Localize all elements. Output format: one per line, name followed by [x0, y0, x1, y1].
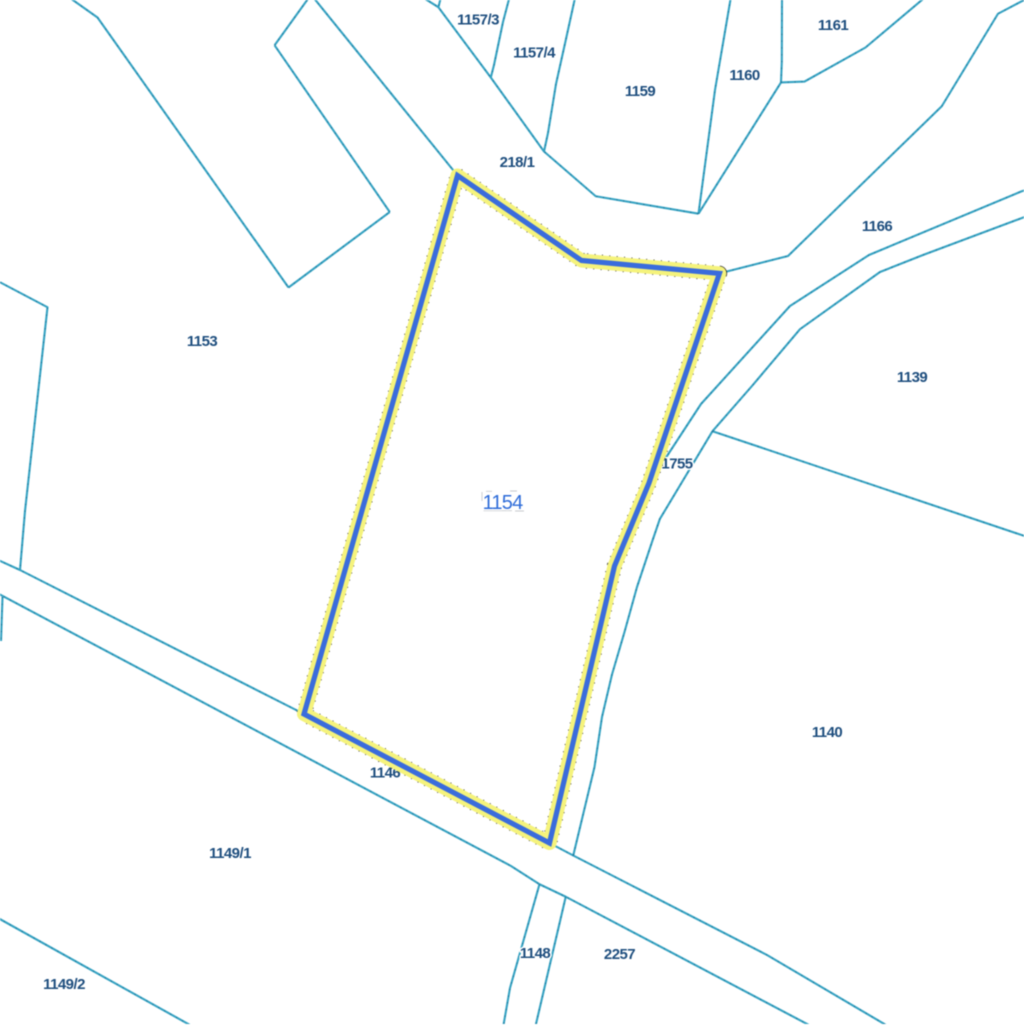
svg-text:1157/4: 1157/4	[513, 45, 556, 62]
svg-text:2257: 2257	[604, 946, 635, 963]
svg-text:1149/2: 1149/2	[43, 976, 85, 993]
svg-text:1755: 1755	[661, 456, 692, 473]
svg-text:218/1: 218/1	[500, 154, 535, 171]
svg-text:1157/3: 1157/3	[457, 12, 499, 29]
svg-text:1140: 1140	[812, 724, 843, 741]
svg-text:1148: 1148	[520, 945, 551, 962]
svg-text:1160: 1160	[729, 67, 760, 84]
svg-text:1161: 1161	[818, 17, 849, 34]
svg-text:1153: 1153	[187, 333, 218, 350]
svg-text:1139: 1139	[897, 369, 928, 386]
svg-text:1166: 1166	[862, 218, 893, 235]
svg-text:1149/1: 1149/1	[209, 845, 251, 862]
svg-text:1159: 1159	[625, 83, 656, 100]
svg-text:1154: 1154	[483, 492, 523, 514]
